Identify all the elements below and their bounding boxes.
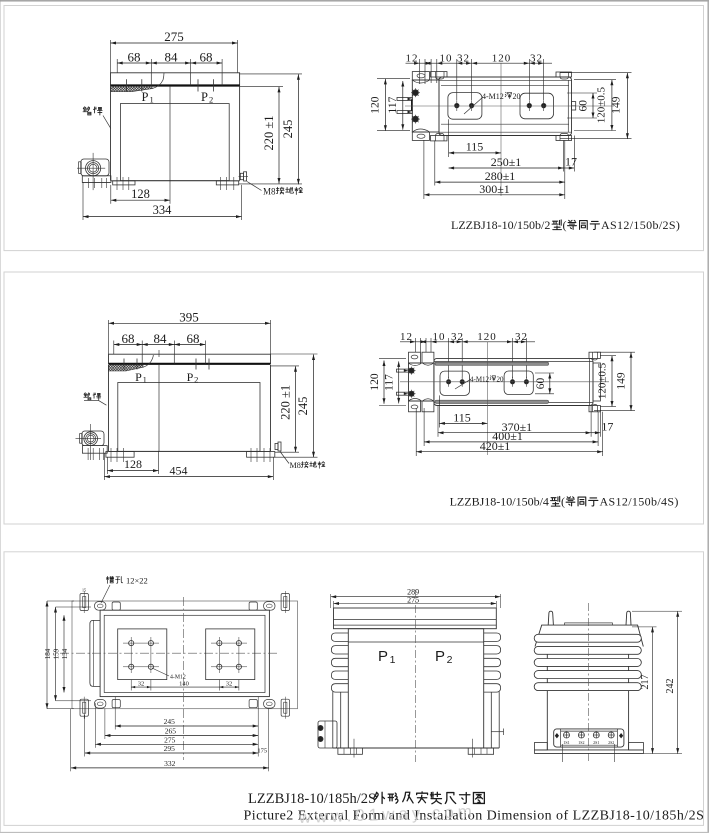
svg-text:84: 84 (165, 49, 179, 64)
svg-text:32: 32 (226, 680, 233, 687)
svg-text:184: 184 (44, 648, 52, 659)
svg-text:10: 10 (433, 331, 446, 343)
svg-text:140: 140 (179, 680, 189, 687)
svg-text:12: 12 (400, 331, 413, 343)
svg-text:454: 454 (170, 464, 188, 478)
svg-text:1: 1 (149, 95, 153, 105)
svg-text:220 ±1: 220 ±1 (278, 385, 292, 420)
svg-text:60: 60 (535, 378, 547, 390)
svg-text:60: 60 (578, 100, 590, 112)
svg-text:(: ( (561, 495, 565, 509)
svg-text:120: 120 (477, 331, 497, 343)
svg-text:245: 245 (281, 120, 295, 139)
svg-text:120: 120 (370, 96, 382, 114)
svg-text:275: 275 (164, 735, 176, 744)
svg-text:149: 149 (611, 96, 623, 114)
svg-text:P: P (201, 90, 208, 104)
svg-text:68: 68 (187, 331, 200, 346)
svg-text:149: 149 (615, 372, 627, 390)
svg-text:4-M12: 4-M12 (470, 376, 490, 384)
svg-text:AS12/150b/2S): AS12/150b/2S) (601, 218, 680, 232)
svg-text:120±0.5: 120±0.5 (596, 362, 608, 399)
svg-text:(: ( (563, 218, 567, 232)
svg-text:332: 332 (164, 759, 176, 768)
svg-text:420±1: 420±1 (480, 439, 511, 453)
svg-text:P: P (187, 370, 194, 384)
svg-text:84: 84 (154, 331, 168, 346)
svg-text:12: 12 (406, 52, 419, 64)
svg-text:LZZBJ18-10/150b/4: LZZBJ18-10/150b/4 (450, 495, 549, 509)
svg-text:115: 115 (453, 411, 471, 425)
svg-text:120: 120 (369, 373, 381, 391)
svg-text:68: 68 (200, 49, 213, 64)
svg-text:245: 245 (296, 397, 310, 416)
svg-text:275: 275 (164, 29, 184, 44)
svg-text:2: 2 (194, 375, 198, 385)
svg-text:1: 1 (390, 654, 396, 666)
svg-text:32: 32 (451, 331, 464, 343)
svg-text:LZZBJ18-10/185h/2S: LZZBJ18-10/185h/2S (248, 791, 376, 807)
svg-text:17: 17 (601, 420, 613, 434)
svg-text:15: 15 (82, 588, 86, 593)
svg-text:68: 68 (128, 49, 141, 64)
svg-text:2S1: 2S1 (593, 740, 599, 745)
svg-text:265: 265 (165, 727, 177, 736)
svg-text:1S1: 1S1 (563, 740, 569, 745)
svg-text:295: 295 (164, 744, 176, 753)
svg-text:245: 245 (164, 717, 176, 726)
svg-text:117: 117 (384, 374, 396, 391)
svg-text:2: 2 (209, 95, 213, 105)
svg-text:10: 10 (440, 52, 453, 64)
svg-text:M8: M8 (290, 461, 301, 470)
svg-text:20: 20 (513, 92, 521, 101)
svg-text:2: 2 (447, 654, 453, 666)
svg-text:134: 134 (61, 648, 69, 659)
svg-text:334: 334 (153, 203, 173, 217)
svg-text:17: 17 (565, 155, 577, 169)
svg-text:32: 32 (515, 331, 528, 343)
svg-text:P: P (142, 90, 149, 104)
svg-text:1S2: 1S2 (578, 740, 584, 745)
svg-text:217: 217 (640, 675, 651, 690)
svg-text:12×22: 12×22 (126, 576, 148, 586)
svg-text:120±0.5: 120±0.5 (595, 86, 607, 123)
svg-text:242: 242 (665, 679, 676, 694)
svg-text:4-M12: 4-M12 (482, 92, 504, 101)
svg-text:32: 32 (457, 52, 470, 64)
svg-text:275: 275 (407, 595, 419, 604)
svg-text:250±1: 250±1 (491, 155, 522, 169)
svg-text:P: P (435, 648, 445, 665)
svg-text:20: 20 (497, 376, 505, 384)
svg-text:32: 32 (138, 680, 145, 687)
svg-text:2S2: 2S2 (608, 740, 614, 745)
svg-text:115: 115 (466, 140, 484, 154)
svg-text:175: 175 (257, 747, 267, 754)
svg-text:117: 117 (387, 96, 399, 113)
svg-text:128: 128 (131, 187, 150, 201)
svg-text:P: P (378, 648, 388, 665)
svg-text:120: 120 (492, 52, 512, 64)
svg-text:68: 68 (122, 331, 135, 346)
svg-text:220 ±1: 220 ±1 (262, 116, 276, 151)
svg-text:M8: M8 (263, 187, 276, 197)
svg-text:P: P (135, 370, 142, 384)
svg-text:300±1: 300±1 (479, 182, 510, 196)
svg-text:AS12/150b/4S): AS12/150b/4S) (600, 495, 679, 509)
svg-text:LZZBJ18-10/150b/2: LZZBJ18-10/150b/2 (451, 218, 550, 232)
svg-text:395: 395 (179, 309, 199, 324)
svg-text:159: 159 (52, 648, 60, 659)
svg-text:128: 128 (124, 457, 142, 471)
svg-text:32: 32 (530, 52, 543, 64)
svg-text:1: 1 (143, 375, 147, 385)
